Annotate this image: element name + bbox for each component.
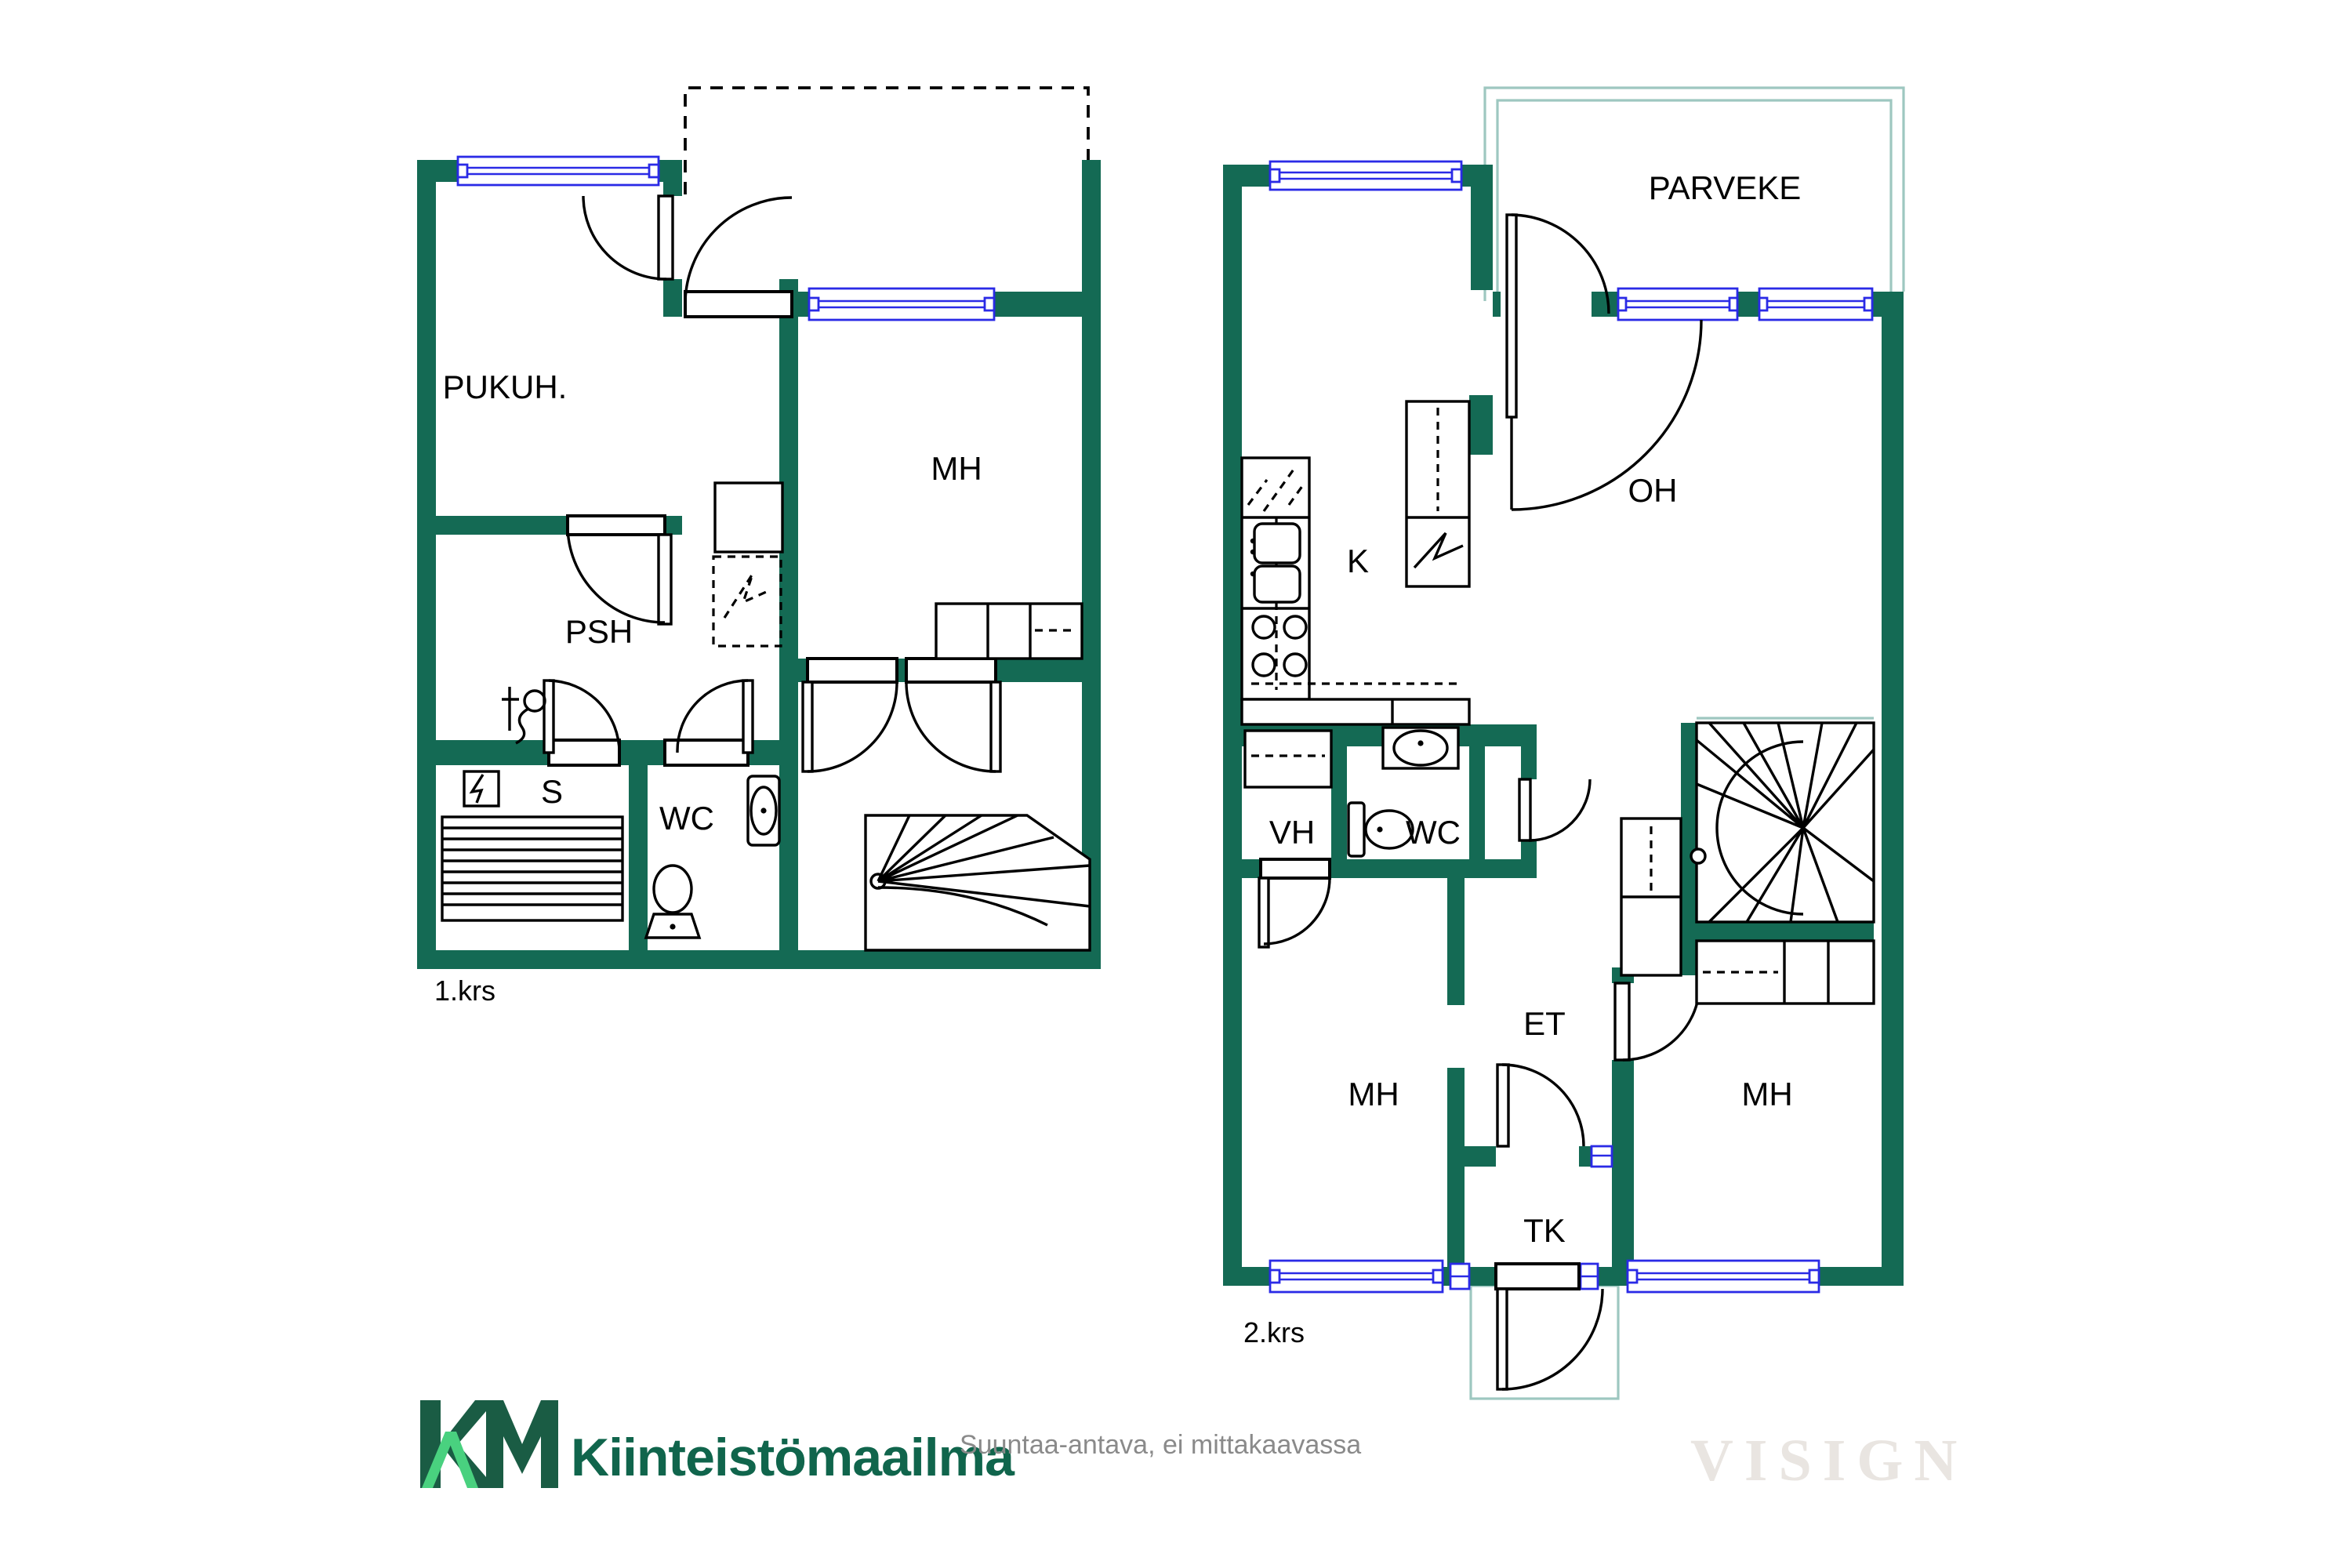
entry-door-sill [1496, 1264, 1579, 1289]
room-label-wc2: WC [1406, 814, 1461, 851]
door-sill [568, 516, 665, 535]
window [1618, 289, 1737, 320]
room-label-mh-right: MH [1741, 1076, 1792, 1112]
room-label-oh: OH [1628, 472, 1678, 509]
window-small [1581, 1264, 1598, 1289]
bench [936, 604, 1082, 659]
door-sill [1261, 859, 1330, 878]
door-sill [906, 659, 996, 682]
room-label-wc: WC [659, 800, 714, 837]
room-label-s: S [541, 773, 563, 810]
floor1-caption: 1.krs [434, 975, 495, 1007]
room-label-et: ET [1523, 1005, 1566, 1042]
room-label-pukuh: PUKUH. [443, 368, 568, 405]
room-label-psh: PSH [565, 613, 633, 650]
room-label-tk: TK [1523, 1212, 1566, 1249]
shower-icon [502, 687, 545, 743]
window [809, 289, 994, 320]
water-heater-icon [713, 557, 781, 646]
logo-m [486, 1400, 558, 1488]
hall-wardrobe [1621, 818, 1681, 975]
balcony-door-leaf [1507, 215, 1516, 417]
floorplan-floor1: PUKUH. MH PSH S WC 1.krs [417, 88, 1101, 1007]
porch-outline [1471, 1286, 1618, 1399]
watermark: VISIGN [1690, 1428, 1968, 1494]
door-sill [808, 659, 897, 682]
entry-door-leaf [1497, 1289, 1507, 1389]
wc-door-leaf [1519, 779, 1530, 840]
window [1759, 289, 1872, 320]
sink-icon [748, 776, 779, 845]
window-sidelight [1592, 1146, 1612, 1167]
toilet-icon [646, 866, 699, 938]
mh-door-leaf [1615, 983, 1629, 1060]
door-sill [685, 292, 792, 317]
floorplan-canvas: PUKUH. MH PSH S WC 1.krs [0, 0, 2352, 1568]
room-label-vh: VH [1269, 814, 1315, 851]
kitchen-sink-icon [1250, 524, 1300, 602]
window [458, 157, 659, 185]
staircase [866, 815, 1090, 950]
sauna-stove-icon [464, 771, 499, 806]
sink-icon [1383, 728, 1458, 768]
floor2-caption: 2.krs [1243, 1316, 1305, 1348]
patio-dashed-outline [685, 88, 1088, 194]
window-small [1450, 1264, 1469, 1289]
staircase [1691, 723, 1874, 922]
km-logo: Kiinteistömaailma [420, 1400, 1015, 1488]
room-label-mh-left: MH [1348, 1076, 1399, 1112]
sauna-benches [442, 817, 622, 920]
door-sill [549, 740, 619, 765]
wardrobe-row [1697, 941, 1874, 1004]
brand-name: Kiinteistömaailma [571, 1428, 1015, 1487]
window [1270, 1261, 1443, 1292]
window [1270, 162, 1461, 190]
floorplan-floor2: PARVEKE OH K VH WC ET MH TK MH 2.krs [1223, 88, 1904, 1399]
footer: Kiinteistömaailma Suuntaa-antava, ei mit… [420, 1400, 1968, 1494]
floor2-fixtures [1242, 401, 1874, 1004]
door-leaf [659, 196, 673, 279]
room-label-mh: MH [931, 450, 982, 487]
fridge-icon [1406, 401, 1469, 586]
window [1628, 1261, 1819, 1292]
toilet-icon [1348, 803, 1413, 856]
cabinet [715, 483, 782, 552]
km-logo-icon [420, 1400, 558, 1488]
disclaimer-text: Suuntaa-antava, ei mittakaavassa [960, 1430, 1361, 1460]
room-label-k: K [1347, 543, 1369, 579]
wardrobe [1245, 731, 1331, 787]
room-label-parveke: PARVEKE [1649, 169, 1802, 206]
tk-door-leaf [1497, 1065, 1508, 1146]
